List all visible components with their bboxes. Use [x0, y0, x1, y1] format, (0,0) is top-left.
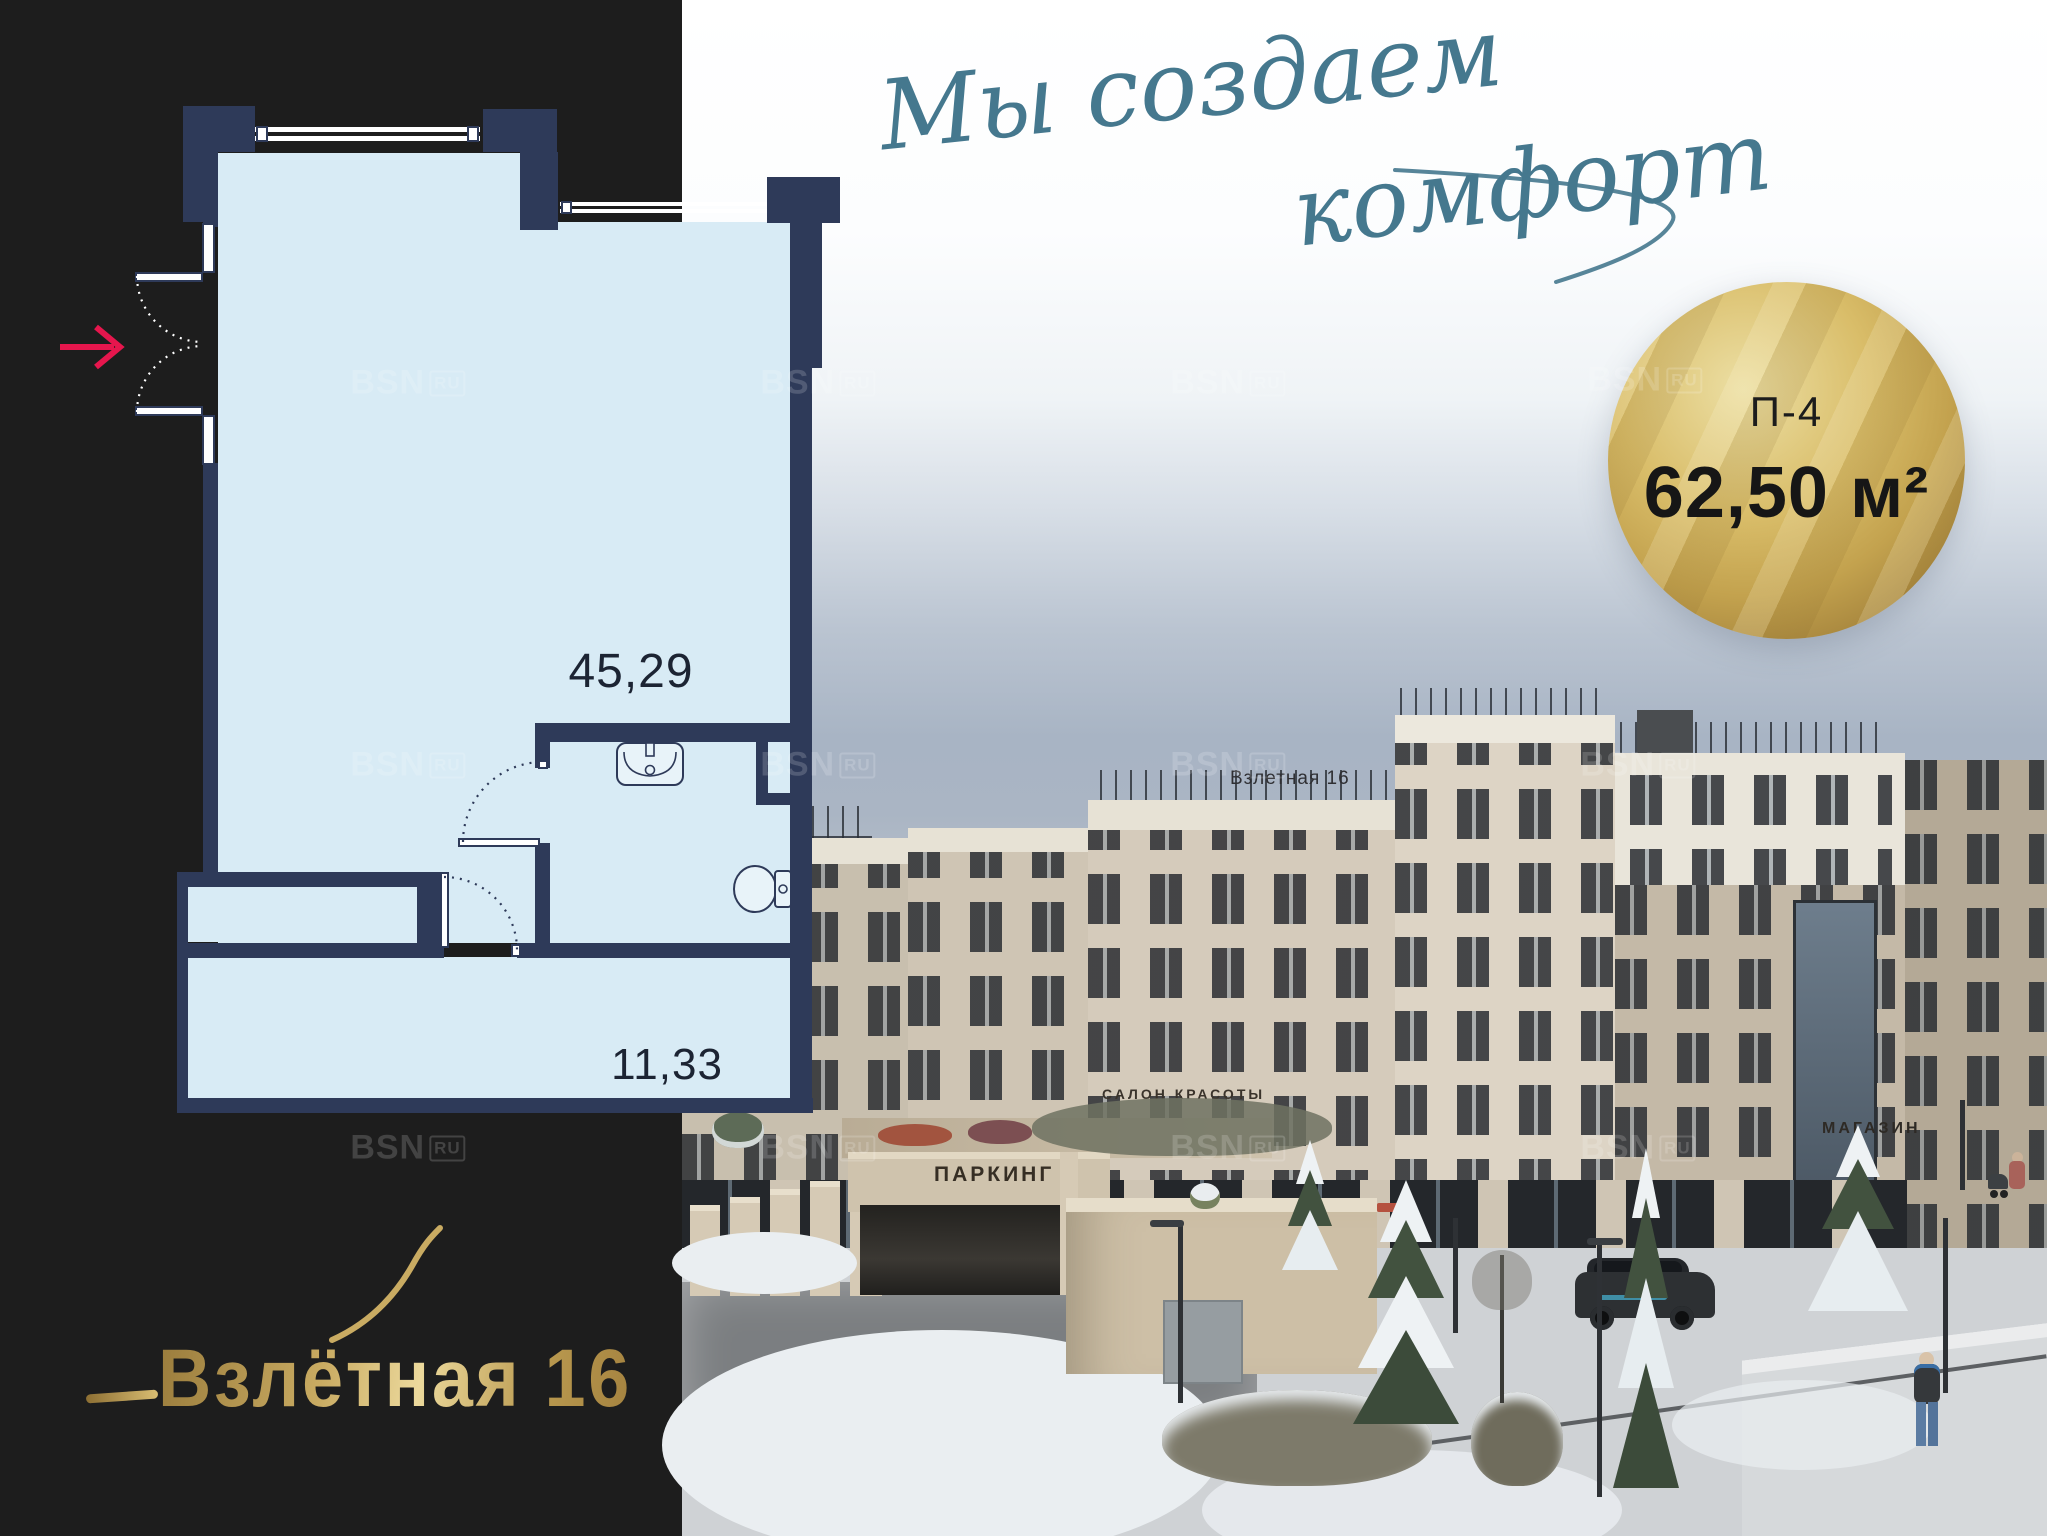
wall-shaft [756, 793, 790, 805]
sink-icon [615, 740, 685, 788]
window-top-right [560, 202, 767, 206]
area-label-main: 45,29 [531, 644, 731, 699]
loggia-door-leaf [440, 872, 449, 948]
toilet-icon [730, 864, 796, 916]
room-fill-closet [188, 887, 417, 942]
wall-segment [535, 843, 550, 943]
window-top-right [560, 209, 767, 213]
wall-segment [520, 152, 558, 230]
door-hinge [511, 944, 521, 957]
entry-door-leaf [135, 406, 203, 416]
window-top-left [255, 127, 480, 132]
window-cap [256, 126, 268, 142]
window-top-left [255, 136, 480, 141]
room-fill-main [218, 153, 558, 943]
wall-segment [177, 872, 430, 887]
floor-plan: 45,29 11,33 [0, 0, 2047, 1536]
wall-segment [177, 877, 188, 1113]
wall-segment [812, 223, 822, 368]
wall-segment [203, 463, 218, 875]
door-jamb [202, 223, 215, 273]
entry-door-leaf [135, 272, 203, 282]
door-jamb [202, 415, 215, 465]
wall-pillar [767, 177, 840, 223]
window-cap [561, 201, 572, 214]
door-hinge [538, 760, 548, 769]
bathroom-door-leaf [458, 838, 540, 847]
flyer-root: Взлетная 16 САЛОН КРАСОТЫ МАГАЗИН [0, 0, 2047, 1536]
window-cap [467, 126, 479, 142]
wall-segment [790, 223, 812, 1113]
wall-segment [183, 152, 218, 222]
wall-shaft [756, 742, 768, 798]
wall-segment [177, 943, 444, 958]
wall-bottom [177, 1098, 813, 1113]
wall-pillar [183, 106, 255, 152]
area-label-loggia: 11,33 [567, 1040, 767, 1090]
wall-segment [517, 943, 793, 958]
wall-pillar [483, 109, 557, 152]
room-fill-right [558, 222, 793, 943]
